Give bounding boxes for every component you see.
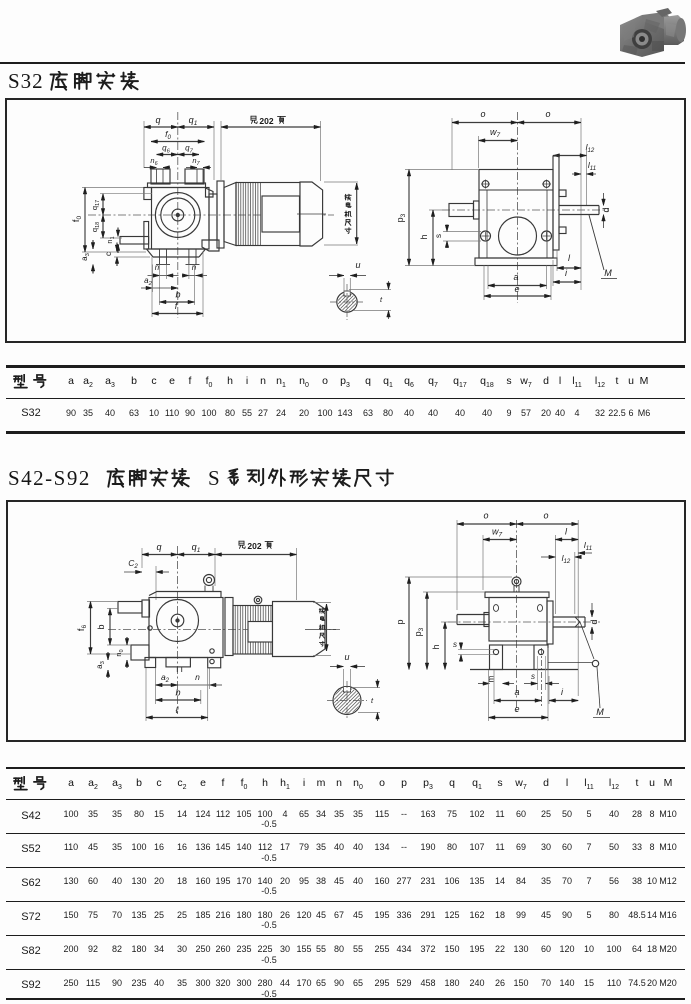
svg-text:n6: n6: [150, 156, 157, 167]
svg-text:f0: f0: [165, 129, 171, 141]
svg-text:n1: n1: [105, 236, 116, 243]
svg-text:C2: C2: [128, 558, 138, 570]
svg-text:l11: l11: [584, 540, 592, 552]
svg-text:o: o: [483, 511, 488, 521]
svg-text:f0: f0: [71, 216, 83, 223]
svg-text:n: n: [195, 672, 200, 682]
svg-text:q1: q1: [189, 115, 198, 127]
svg-text:h: h: [431, 644, 441, 649]
svg-text:e: e: [514, 704, 519, 714]
svg-text:ℓ: ℓ: [174, 705, 179, 716]
svg-text:a: a: [514, 687, 519, 697]
svg-text:q6: q6: [162, 144, 170, 155]
svg-text:o: o: [545, 109, 550, 119]
svg-text:l: l: [565, 527, 568, 537]
svg-text:202: 202: [259, 116, 273, 126]
svg-text:b: b: [96, 624, 106, 629]
svg-text:s: s: [531, 672, 535, 681]
svg-text:u: u: [355, 260, 360, 270]
svg-text:q18: q18: [90, 222, 101, 232]
svg-text:q: q: [155, 115, 160, 125]
svg-text:n: n: [155, 263, 160, 272]
svg-text:M: M: [604, 268, 612, 278]
svg-text:202: 202: [247, 541, 261, 551]
svg-text:d: d: [589, 619, 599, 624]
svg-text:a: a: [513, 272, 518, 282]
svg-text:i: i: [561, 687, 564, 697]
svg-text:e: e: [514, 284, 519, 294]
svg-text:M: M: [596, 707, 604, 717]
svg-text:c: c: [104, 252, 113, 256]
svg-text:l12: l12: [562, 553, 571, 565]
svg-text:h: h: [419, 234, 429, 239]
svg-text:q: q: [156, 542, 161, 552]
svg-text:o: o: [480, 109, 485, 119]
svg-text:w7: w7: [490, 127, 501, 139]
svg-text:a3: a3: [80, 253, 91, 261]
svg-text:w7: w7: [492, 527, 503, 539]
svg-text:t: t: [380, 295, 383, 304]
svg-text:l12: l12: [586, 142, 595, 154]
svg-text:l: l: [568, 253, 571, 263]
svg-text:l11: l11: [588, 160, 596, 172]
svg-text:p: p: [395, 619, 405, 624]
svg-text:a2: a2: [144, 276, 152, 287]
svg-text:u: u: [344, 652, 349, 662]
svg-text:p3: p3: [395, 213, 407, 222]
svg-text:n7: n7: [192, 156, 200, 167]
svg-text:d: d: [601, 207, 611, 212]
svg-text:t: t: [371, 696, 374, 705]
svg-text:n0: n0: [114, 649, 125, 656]
svg-text:s: s: [453, 640, 457, 649]
svg-text:q17: q17: [90, 200, 101, 210]
svg-text:i: i: [565, 268, 568, 278]
svg-text:o: o: [543, 511, 548, 521]
svg-text:q1: q1: [192, 542, 201, 554]
svg-text:f6: f6: [76, 625, 88, 632]
svg-text:q7: q7: [185, 144, 193, 155]
svg-text:b: b: [175, 688, 180, 698]
svg-text:s: s: [434, 234, 443, 238]
svg-text:a3: a3: [95, 661, 106, 669]
svg-text:a2: a2: [161, 672, 170, 684]
svg-text:p3: p3: [413, 627, 425, 636]
svg-text:b: b: [175, 290, 180, 300]
